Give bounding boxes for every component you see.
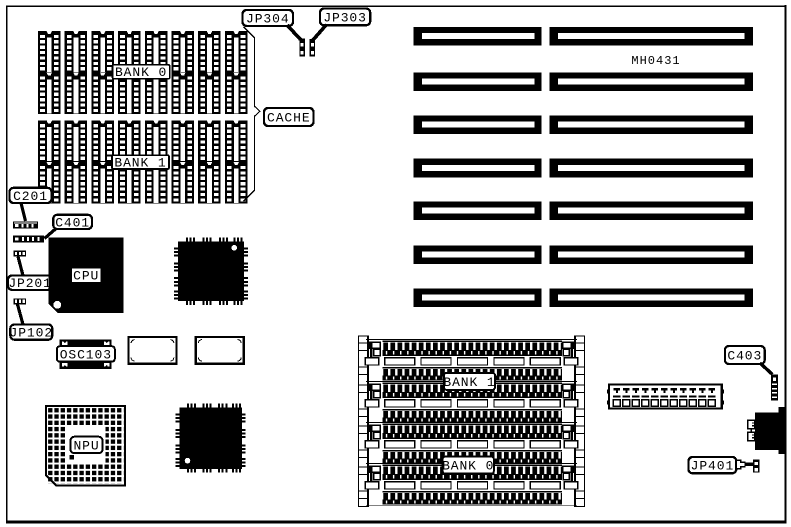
svg-text:JP401: JP401 <box>691 459 735 474</box>
svg-text:BANK 1: BANK 1 <box>443 375 495 390</box>
svg-text:CPU: CPU <box>73 268 99 283</box>
svg-text:OSC103: OSC103 <box>60 347 112 362</box>
svg-text:CACHE: CACHE <box>267 110 311 125</box>
svg-text:C401: C401 <box>55 215 90 230</box>
svg-text:JP304: JP304 <box>246 11 290 26</box>
svg-text:BANK 0: BANK 0 <box>442 459 494 474</box>
svg-text:JP201: JP201 <box>8 276 52 291</box>
svg-text:BANK 0: BANK 0 <box>115 65 167 80</box>
svg-text:JP303: JP303 <box>323 10 367 25</box>
svg-text:MH0431: MH0431 <box>631 54 680 68</box>
svg-text:C403: C403 <box>727 348 762 363</box>
svg-text:NPU: NPU <box>73 438 99 453</box>
svg-text:JP102: JP102 <box>10 326 54 341</box>
svg-text:C201: C201 <box>13 189 48 204</box>
svg-text:BANK 1: BANK 1 <box>114 156 166 171</box>
